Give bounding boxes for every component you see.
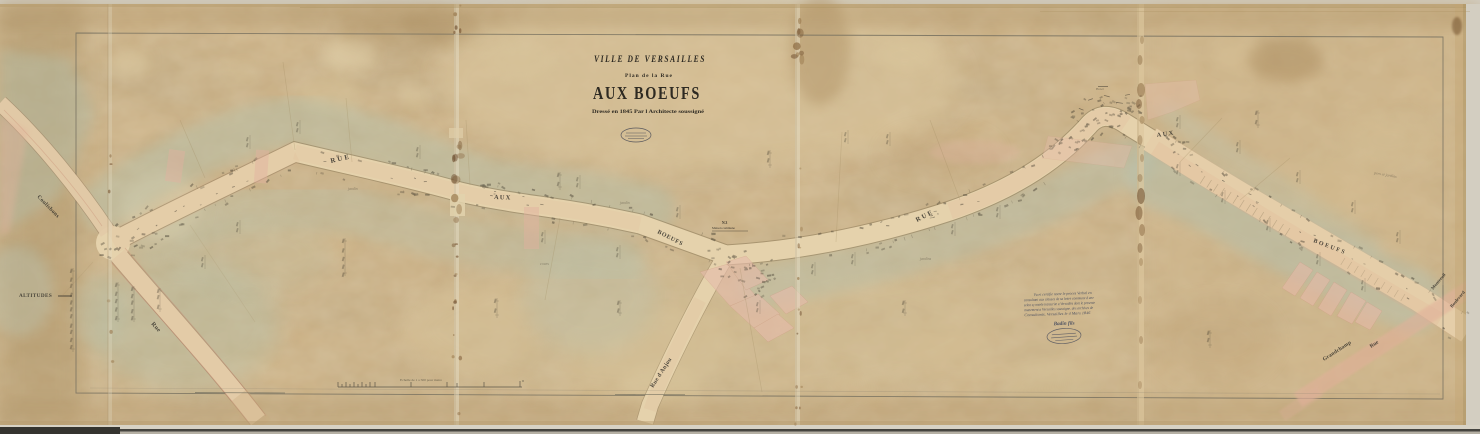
svg-text:AUX BOEUFS: AUX BOEUFS (593, 83, 701, 103)
svg-text:cours: cours (540, 261, 549, 266)
svg-text:jardins: jardins (919, 256, 932, 261)
svg-text:VILLE DE VERSAILLES: VILLE DE VERSAILLES (594, 55, 706, 65)
svg-text:Maison commune: Maison commune (712, 226, 736, 230)
svg-text:ALTITUDES: ALTITUDES (19, 293, 52, 299)
svg-text:Hotel: Hotel (1096, 87, 1104, 91)
svg-text:jardin: jardin (347, 186, 358, 191)
svg-text:Badin fils: Badin fils (1053, 321, 1075, 328)
svg-text:jardin: jardin (619, 200, 630, 205)
svg-text:N.3: N.3 (722, 221, 727, 225)
svg-text:AUX: AUX (494, 194, 512, 202)
svg-text:Echelle de 1 a 500 pour metre: Echelle de 1 a 500 pour metre (400, 378, 442, 382)
svg-text:Plan de la Rue: Plan de la Rue (625, 73, 673, 79)
svg-text:Dressé en 1845 Par l Architect: Dressé en 1845 Par l Architecte soussign… (592, 109, 705, 115)
